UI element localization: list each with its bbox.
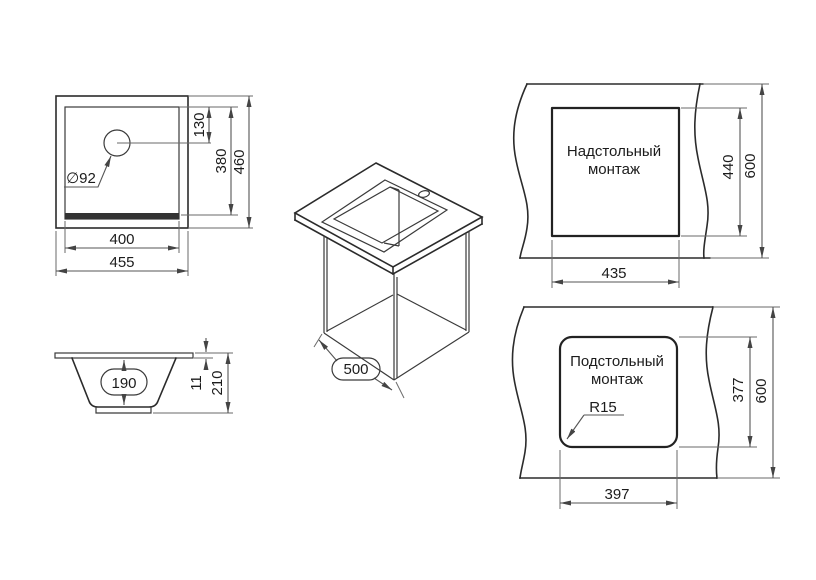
faucet-hole-iso xyxy=(418,190,430,199)
inner-height-label: 380 xyxy=(213,148,230,173)
slab-top xyxy=(295,163,482,267)
dim-500-arrow-a xyxy=(319,340,337,361)
counter-break-right xyxy=(706,307,719,478)
bowl-depth-label: 190 xyxy=(111,375,136,392)
top-view: ∅92 130 380 460 400 455 xyxy=(56,96,253,276)
overmount-title-line1: Надстольный xyxy=(567,143,661,160)
counter-break-right xyxy=(695,84,708,258)
overmount-cutout-width-label: 435 xyxy=(601,265,626,282)
cabinet-depth-label: 500 xyxy=(343,361,368,378)
technical-drawing: ∅92 130 380 460 400 455 190 xyxy=(0,0,816,580)
cabinet-bottom-right xyxy=(394,332,469,380)
outer-height-label: 460 xyxy=(231,149,248,174)
counter-break-left xyxy=(514,84,528,258)
overmount-title-line2: монтаж xyxy=(588,161,640,178)
undermount-counter-depth-label: 600 xyxy=(753,378,770,403)
sink-rim-profile xyxy=(55,353,193,358)
extension-line xyxy=(396,382,404,398)
overmount-cutout-height-label: 440 xyxy=(720,154,737,179)
inner-width-label: 400 xyxy=(109,231,134,248)
drain-foot xyxy=(96,407,151,413)
overmount-counter-depth-label: 600 xyxy=(742,153,759,178)
radius-leader xyxy=(567,415,584,439)
extension-line xyxy=(314,334,322,347)
rim-thickness-label: 11 xyxy=(188,375,205,391)
drawing-canvas: ∅92 130 380 460 400 455 190 xyxy=(0,0,816,580)
sink-outer-outline xyxy=(56,96,188,228)
bowl-far-wall-band xyxy=(65,213,179,219)
total-height-label: 210 xyxy=(209,370,226,395)
outer-width-label: 455 xyxy=(109,254,134,271)
cabinet-interior-right xyxy=(397,294,466,330)
hole-offset-label: 130 xyxy=(191,112,208,137)
sink-opening xyxy=(334,187,438,243)
undermount-view: Подстольный монтаж R15 377 600 397 xyxy=(512,307,780,509)
undermount-title-line1: Подстольный xyxy=(570,353,664,370)
undermount-cutout-width-label: 397 xyxy=(604,486,629,503)
undermount-title-line2: монтаж xyxy=(591,371,643,388)
sink-bowl-outline xyxy=(65,107,179,219)
hole-diameter-label: ∅92 xyxy=(66,170,96,187)
overmount-view: Надстольный монтаж 440 600 435 xyxy=(514,84,769,288)
cabinet-interior-left xyxy=(327,295,393,331)
dim-500-arrow-b xyxy=(374,378,392,390)
undermount-cutout-height-label: 377 xyxy=(730,377,747,402)
isometric-view: 500 xyxy=(295,163,482,398)
counter-break-left xyxy=(512,307,526,478)
corner-radius-label: R15 xyxy=(589,399,617,416)
side-view: 190 11 210 xyxy=(55,338,233,413)
